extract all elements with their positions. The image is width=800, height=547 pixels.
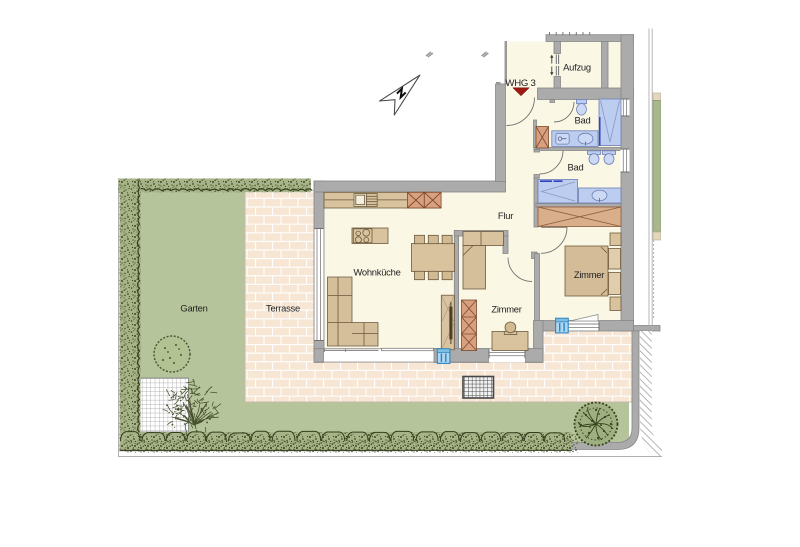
svg-text:Bad: Bad bbox=[575, 115, 591, 126]
svg-text:Bad: Bad bbox=[568, 162, 584, 173]
svg-text:Zimmer: Zimmer bbox=[491, 304, 521, 315]
svg-text:Wohnküche: Wohnküche bbox=[353, 267, 400, 278]
svg-text:Garten: Garten bbox=[180, 303, 207, 314]
svg-text:WHG 3: WHG 3 bbox=[505, 78, 535, 89]
svg-text:Aufzug: Aufzug bbox=[563, 62, 591, 73]
svg-text:Zimmer: Zimmer bbox=[574, 269, 604, 280]
svg-text:Terrasse: Terrasse bbox=[266, 303, 300, 314]
svg-text:Flur: Flur bbox=[498, 210, 513, 221]
